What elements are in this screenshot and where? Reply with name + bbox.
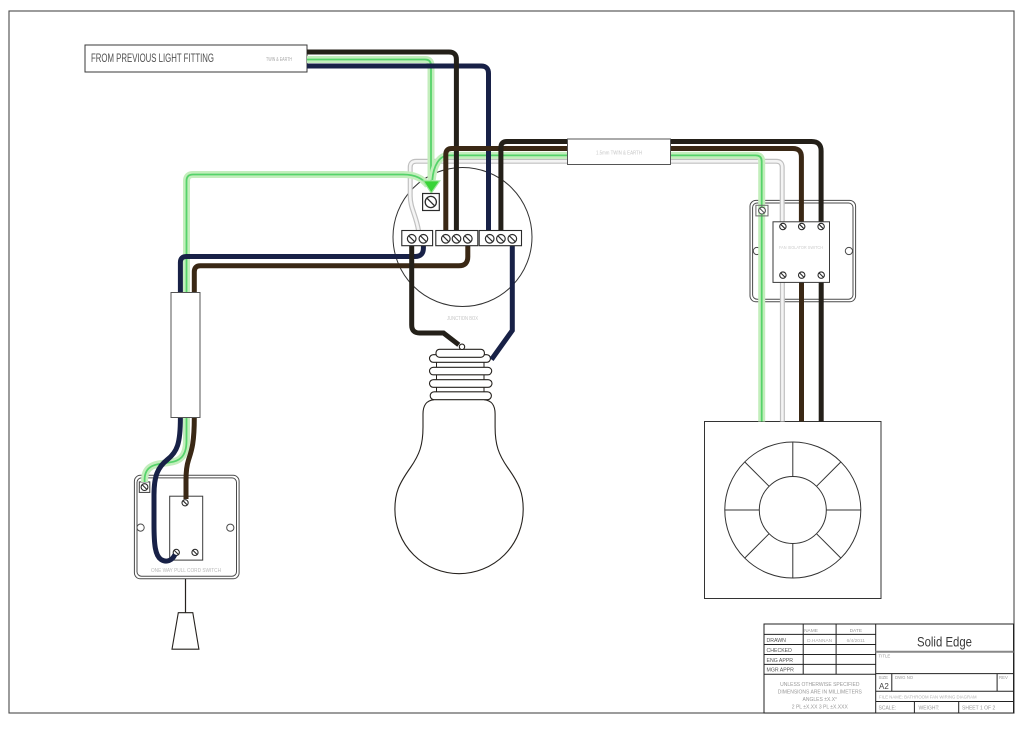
svg-text:Solid Edge: Solid Edge: [917, 634, 972, 650]
svg-text:1.5mm TWIN & EARTH: 1.5mm TWIN & EARTH: [596, 151, 642, 157]
svg-text:DRAWN: DRAWN: [767, 638, 787, 644]
svg-text:D.HANNAN: D.HANNAN: [807, 638, 833, 644]
svg-text:FROM PREVIOUS LIGHT FITTING: FROM PREVIOUS LIGHT FITTING: [91, 51, 214, 65]
svg-text:SIZE: SIZE: [879, 675, 889, 680]
svg-text:WEIGHT:: WEIGHT:: [919, 706, 940, 712]
svg-text:MGR APPR: MGR APPR: [767, 668, 795, 674]
svg-text:A2: A2: [879, 682, 889, 691]
svg-text:DIMENSIONS ARE IN MILLIMETERS: DIMENSIONS ARE IN MILLIMETERS: [778, 690, 863, 696]
svg-text:SHEET 1 OF 2: SHEET 1 OF 2: [962, 706, 995, 712]
svg-text:SCALE:: SCALE:: [879, 706, 897, 712]
svg-text:DATE: DATE: [850, 628, 862, 634]
svg-text:FILE NAME: BATHROOM FAN WIRING: FILE NAME: BATHROOM FAN WIRING DIAGRAM: [879, 695, 977, 700]
svg-text:REV: REV: [999, 675, 1008, 680]
svg-text:6/4/2011: 6/4/2011: [847, 638, 866, 644]
svg-text:DWG NO: DWG NO: [895, 675, 914, 680]
svg-text:NAME: NAME: [804, 628, 818, 634]
svg-text:FAN ISOLATOR SWITCH: FAN ISOLATOR SWITCH: [779, 245, 823, 250]
svg-text:ENG APPR: ENG APPR: [767, 658, 794, 664]
svg-text:UNLESS OTHERWISE SPECIFIED: UNLESS OTHERWISE SPECIFIED: [780, 682, 860, 688]
svg-text:CHECKED: CHECKED: [767, 648, 793, 654]
svg-text:ONE WAY PULL CORD SWITCH: ONE WAY PULL CORD SWITCH: [151, 568, 221, 574]
svg-text:2 PL ±X.XX 3 PL ±X.XXX: 2 PL ±X.XX 3 PL ±X.XXX: [792, 705, 849, 711]
svg-text:TWIN & EARTH: TWIN & EARTH: [266, 57, 292, 63]
svg-text:JUNCTION BOX: JUNCTION BOX: [447, 316, 478, 322]
svg-text:ANGLES ±X.X°: ANGLES ±X.X°: [803, 697, 837, 703]
svg-text:TITLE: TITLE: [879, 654, 891, 659]
